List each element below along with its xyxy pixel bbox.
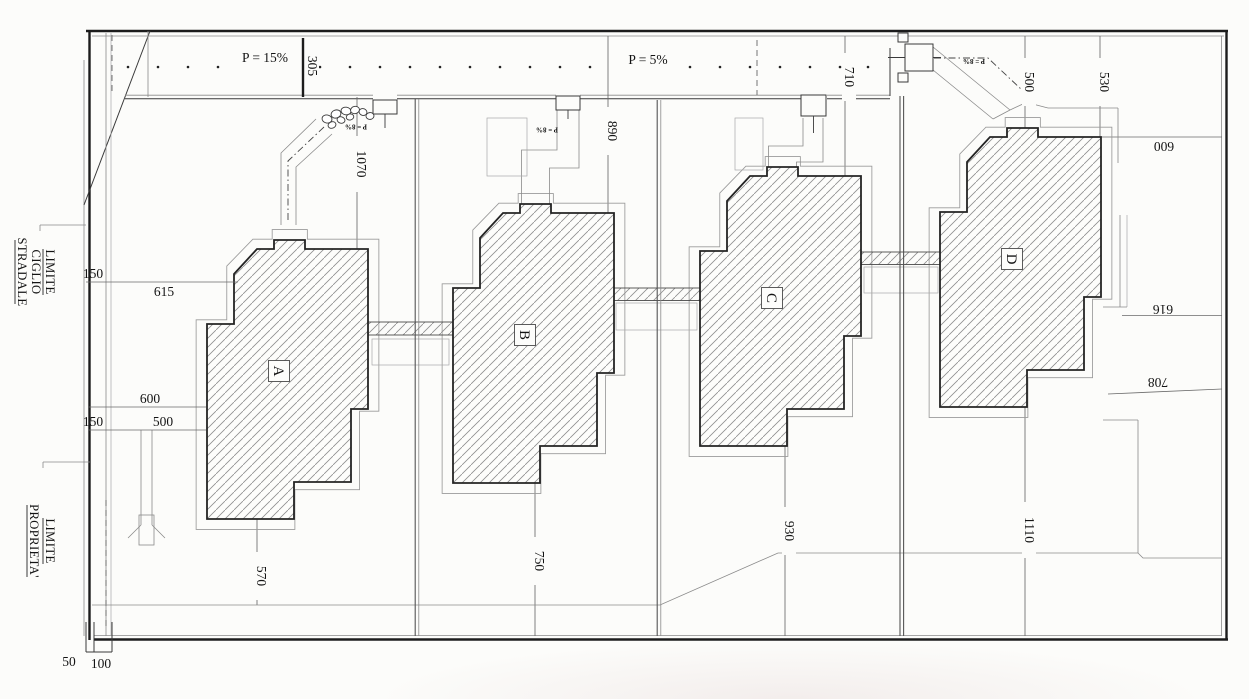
scan-shade	[370, 640, 1210, 699]
dim-150-bottom: 150	[83, 414, 104, 429]
dim-500-left: 500	[153, 414, 174, 429]
dim-50: 50	[62, 654, 76, 669]
gate-b	[556, 96, 580, 110]
site-plan-page: A B C D P = 15% P = 5% P = 8% P = 8% P =…	[0, 0, 1249, 699]
dim-600-right: 600	[1154, 139, 1175, 154]
dim-500: 500	[1022, 72, 1037, 93]
building-letter-d: D	[1003, 254, 1019, 265]
building-label-b: B	[515, 325, 536, 346]
limite-ciglio-stradale: LIMITE CIGLIO STRADALE	[15, 238, 57, 307]
building-letter-b: B	[516, 330, 532, 340]
limite-ciglio-line3: STRADALE	[15, 238, 29, 307]
ramp-slope-label-a: P = 8%	[345, 123, 367, 131]
road-dots	[127, 66, 870, 69]
limite-proprieta-line2: PROPRIETA'	[27, 504, 41, 578]
building-label-c: C	[762, 288, 783, 309]
limite-ciglio-line2: CIGLIO	[29, 249, 43, 294]
corner-detail: 50 100	[62, 622, 112, 671]
dim-930: 930	[782, 521, 797, 542]
dim-305: 305	[305, 56, 320, 77]
building-letter-a: A	[270, 366, 286, 377]
dim-600-left: 600	[140, 391, 161, 406]
dim-616-right: 616	[1153, 302, 1174, 317]
building-label-a: A	[269, 361, 290, 382]
slope-label-p5: P = 5%	[628, 52, 667, 67]
street-band	[125, 38, 890, 99]
building-label-d: D	[1002, 249, 1023, 270]
dim-1070: 1070	[354, 151, 369, 178]
limite-proprieta: LIMITE PROPRIETA'	[27, 504, 57, 578]
ramp-slope-label-b: P = 8%	[536, 126, 558, 134]
dim-750: 750	[532, 551, 547, 572]
gate-d-post-top	[898, 33, 908, 42]
gate-c	[801, 95, 826, 116]
dim-710: 710	[842, 67, 857, 88]
dim-570: 570	[254, 566, 269, 587]
dim-708-right: 708	[1148, 375, 1169, 390]
limite-proprieta-line1: LIMITE	[43, 518, 57, 563]
dim-100: 100	[91, 656, 112, 671]
slope-label-p15: P = 15%	[242, 50, 288, 65]
site-plan-svg: A B C D P = 15% P = 5% P = 8% P = 8% P =…	[0, 0, 1249, 699]
limite-ciglio-line1: LIMITE	[43, 249, 57, 294]
gate-a	[373, 100, 397, 114]
building-letter-c: C	[763, 293, 779, 303]
dim-890: 890	[605, 121, 620, 142]
dim-615: 615	[154, 284, 175, 299]
gate-d	[905, 44, 933, 71]
dim-150-top: 150	[83, 266, 104, 281]
ramp-slope-label-d: P = 8%	[963, 57, 985, 65]
dim-530: 530	[1097, 72, 1112, 93]
gate-d-post-bottom	[898, 73, 908, 82]
flipped-dimensions: 600 616 708	[1148, 139, 1175, 390]
dim-1110: 1110	[1022, 517, 1037, 543]
